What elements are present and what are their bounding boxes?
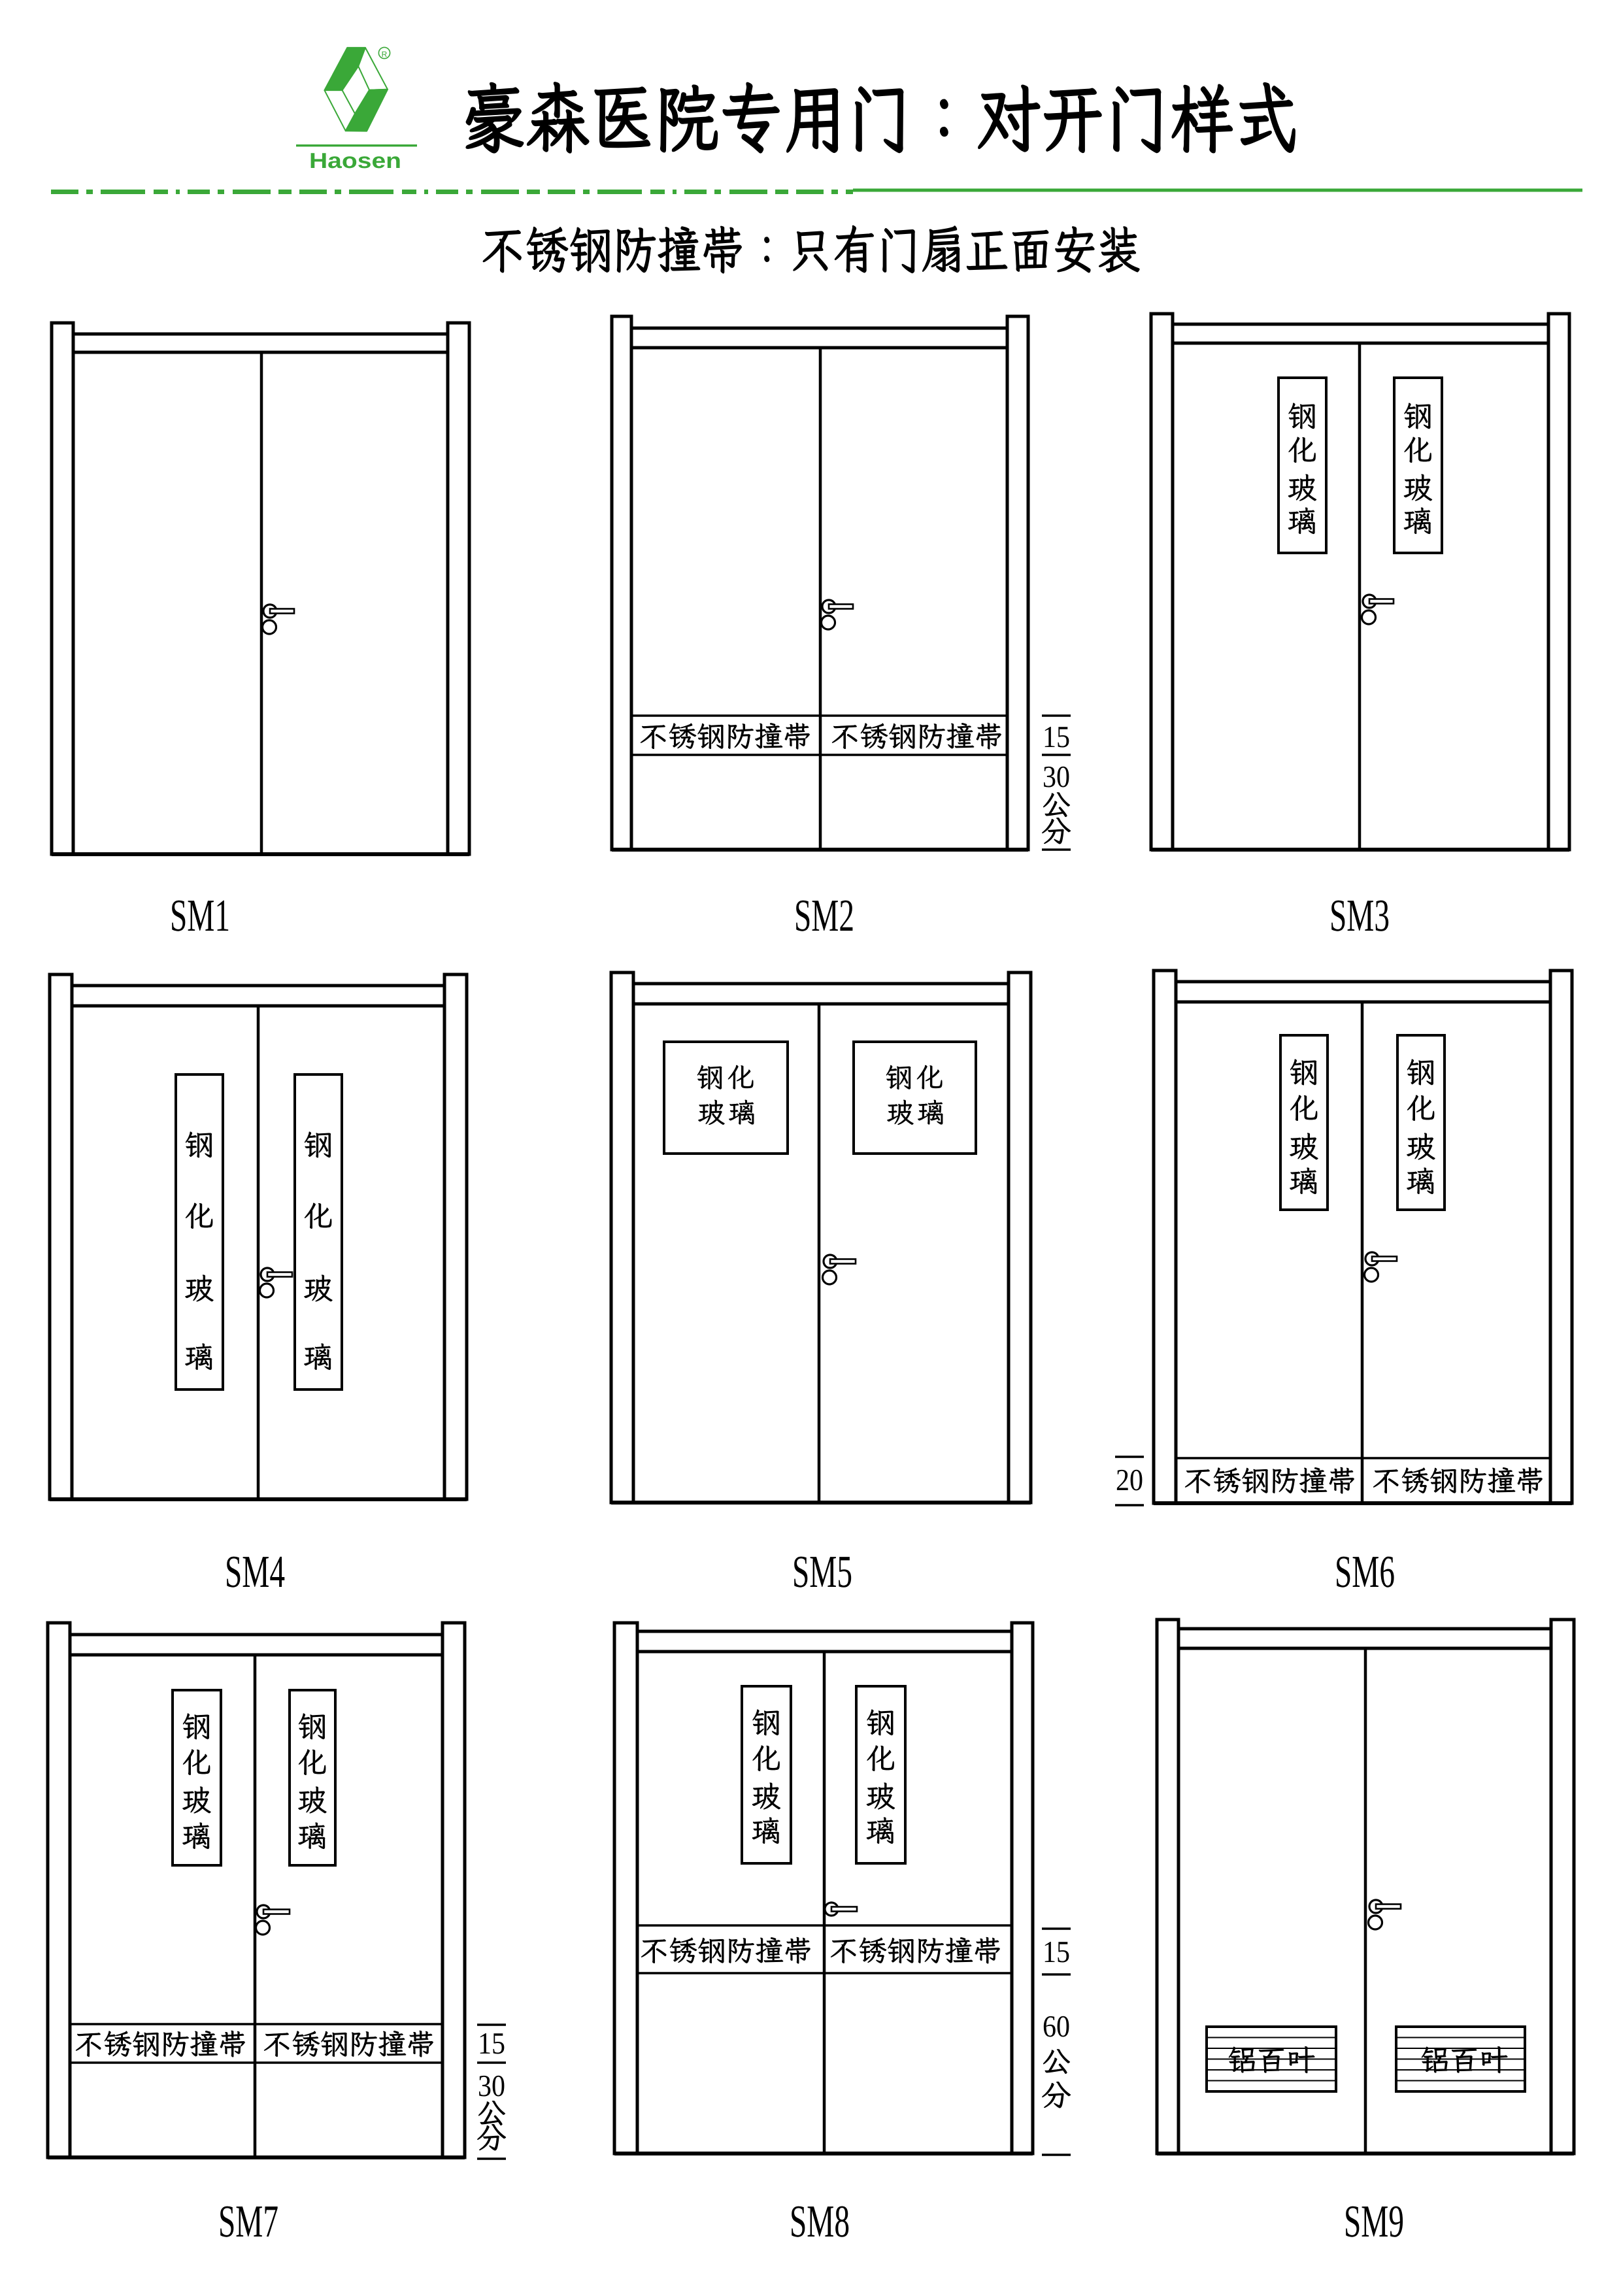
svg-text:20: 20: [1116, 1463, 1143, 1497]
svg-text:Haosen: Haosen: [309, 148, 401, 173]
svg-text:SM5: SM5: [792, 1547, 852, 1597]
svg-text:SM4: SM4: [225, 1547, 285, 1597]
svg-text:SM1: SM1: [170, 891, 230, 941]
svg-text:SM6: SM6: [1335, 1547, 1395, 1597]
svg-text:SM2: SM2: [794, 891, 854, 941]
svg-text:R: R: [382, 50, 388, 59]
svg-text:SM7: SM7: [218, 2197, 278, 2247]
svg-text:SM9: SM9: [1344, 2197, 1404, 2247]
svg-text:15: 15: [1043, 720, 1070, 754]
svg-text:15: 15: [478, 2027, 505, 2061]
svg-text:30: 30: [1043, 760, 1070, 794]
svg-text:60: 60: [1043, 2010, 1070, 2044]
svg-text:15: 15: [1043, 1935, 1070, 1969]
svg-text:SM8: SM8: [790, 2197, 850, 2247]
svg-text:SM3: SM3: [1329, 891, 1390, 941]
svg-text:30: 30: [478, 2069, 505, 2103]
